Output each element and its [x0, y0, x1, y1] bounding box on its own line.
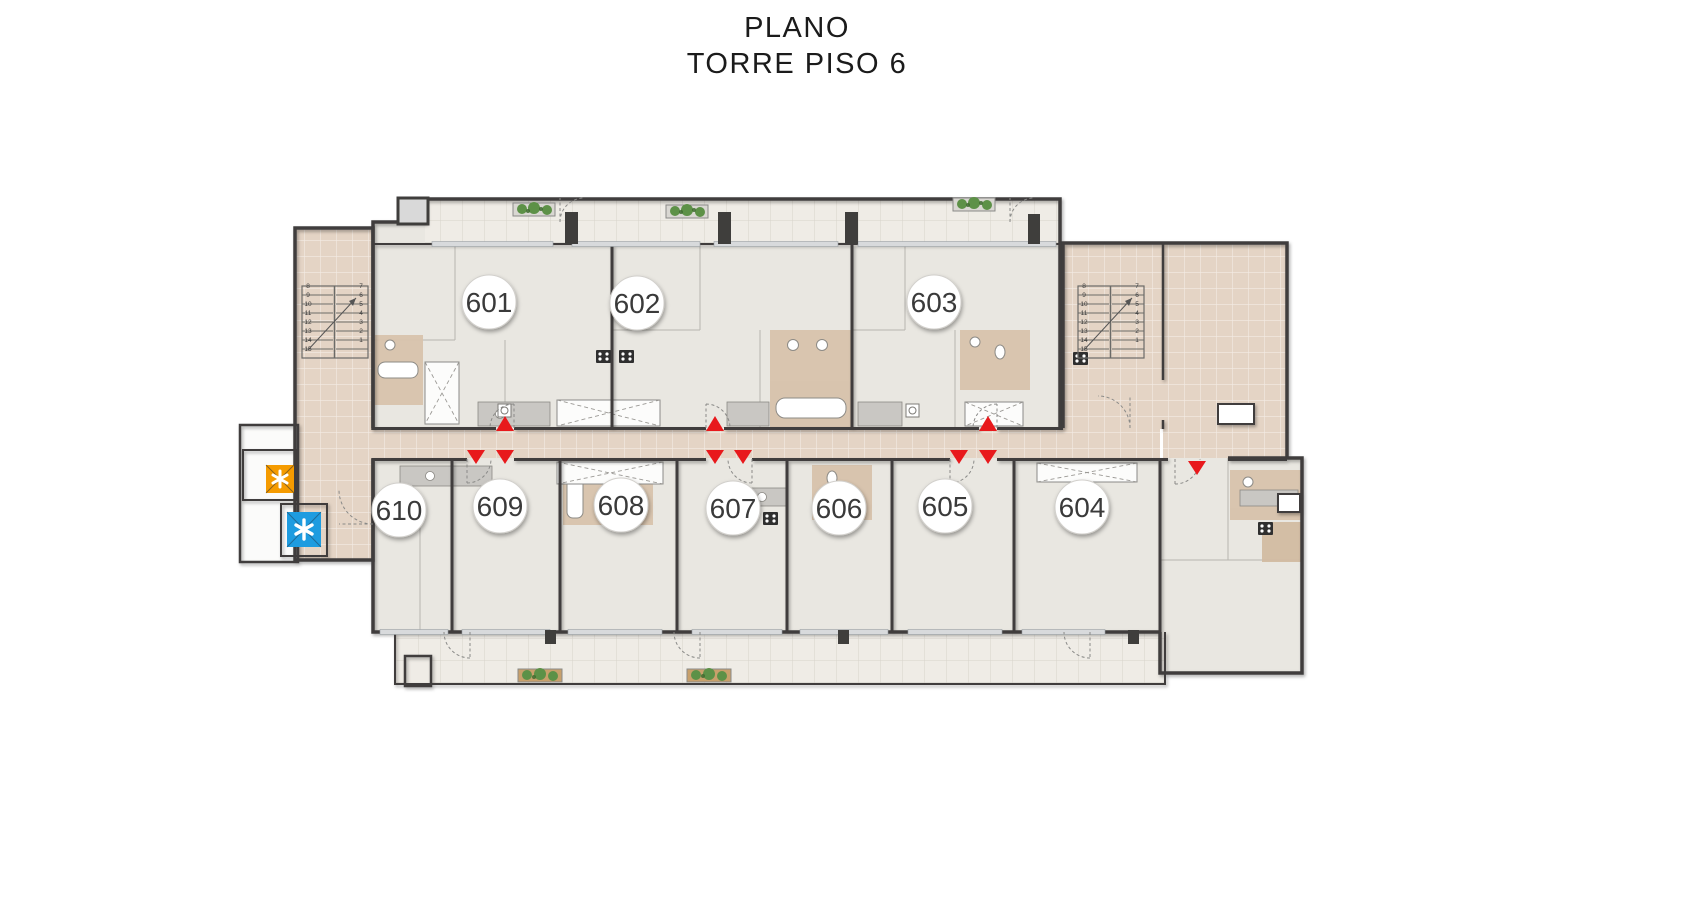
floor-fills: [240, 199, 1302, 686]
unit-badge-605: 605: [918, 479, 972, 533]
unit-badge-606: 606: [812, 481, 866, 535]
unit-badge-602: 602: [610, 276, 664, 330]
unit-badge-610: 610: [372, 483, 426, 537]
unit-badge-608: 608: [594, 478, 648, 532]
svg-text:607: 607: [710, 493, 757, 524]
svg-text:608: 608: [598, 490, 645, 521]
floor-plan-page: PLANO TORRE PISO 6: [0, 0, 1701, 900]
left-stairs-up-numbers: 8 9 10 11 12 13 14 15: [302, 283, 314, 355]
unit-badge-601: 601: [462, 275, 516, 329]
left-stairs-down-numbers: 7 6 5 4 3 2 1: [355, 283, 367, 346]
svg-text:605: 605: [922, 491, 969, 522]
unit-badge-607: 607: [706, 481, 760, 535]
svg-text:610: 610: [376, 495, 423, 526]
svg-text:601: 601: [466, 287, 513, 318]
svg-text:602: 602: [614, 288, 661, 319]
floor-plan-drawing: 601 602 603 604 605 606: [0, 0, 1701, 900]
unit-badge-603: 603: [907, 275, 961, 329]
svg-text:606: 606: [816, 493, 863, 524]
right-stairs-up-numbers: 8 9 10 11 12 13 14 15: [1078, 283, 1090, 355]
unit-badge-609: 609: [473, 479, 527, 533]
svg-text:609: 609: [477, 491, 524, 522]
svg-text:604: 604: [1059, 492, 1106, 523]
elevator-2-icon: [287, 512, 321, 547]
unit-badge-604: 604: [1055, 480, 1109, 534]
elevator-1-icon: [266, 465, 294, 493]
right-stairs-down-numbers: 7 6 5 4 3 2 1: [1131, 283, 1143, 346]
svg-text:603: 603: [911, 287, 958, 318]
